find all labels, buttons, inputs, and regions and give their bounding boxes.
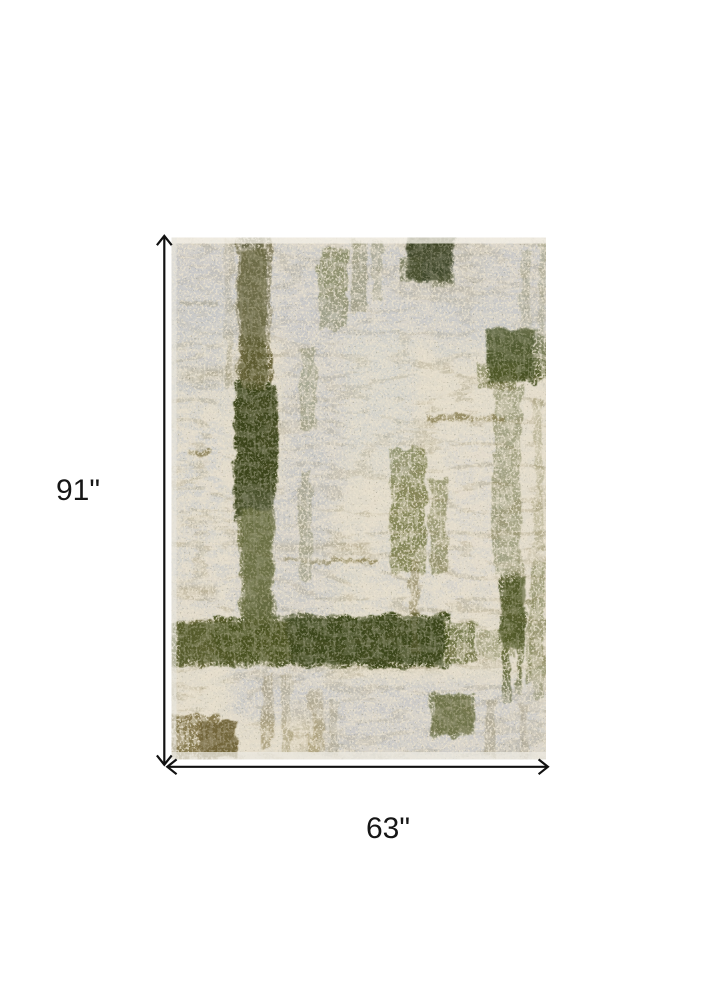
svg-text:91": 91": [56, 474, 100, 507]
svg-text:63": 63": [366, 812, 410, 845]
